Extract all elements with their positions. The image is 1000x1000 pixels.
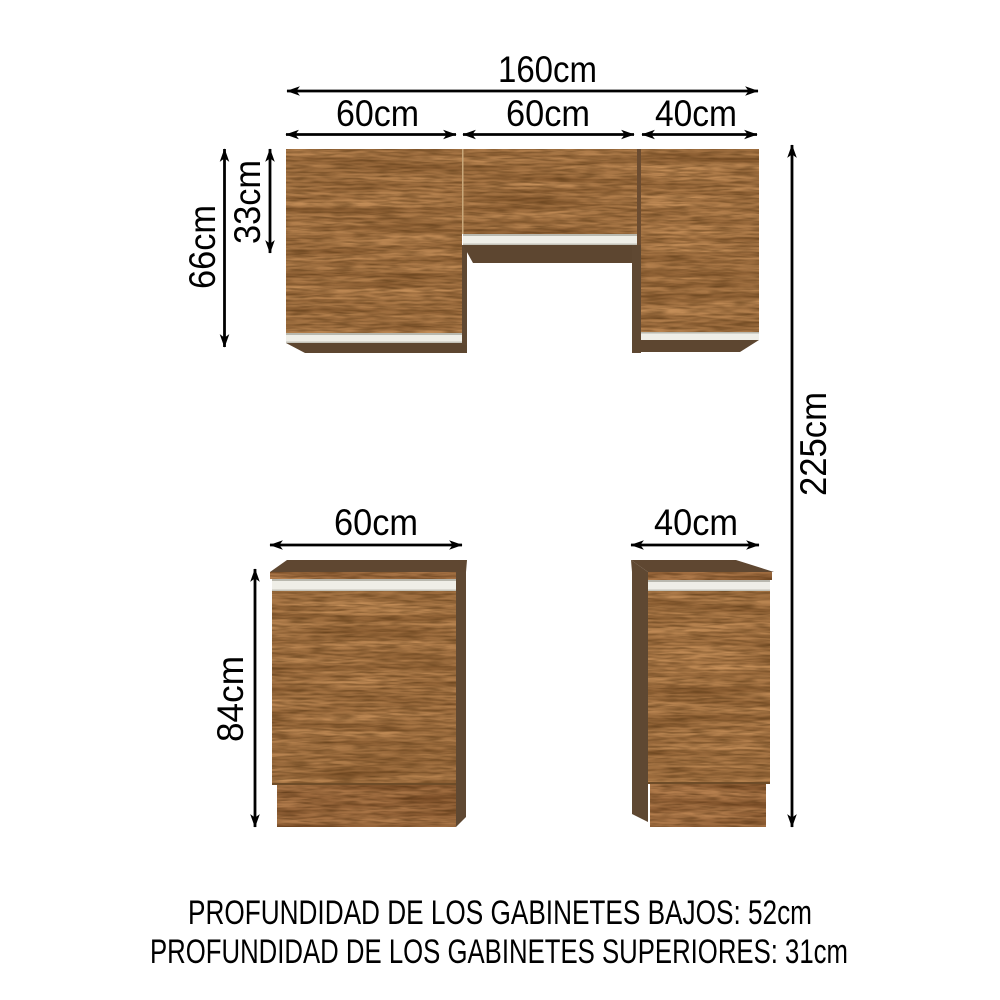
svg-text:60cm: 60cm — [334, 502, 418, 543]
svg-text:225cm: 225cm — [793, 392, 834, 496]
svg-text:160cm: 160cm — [498, 49, 597, 90]
svg-text:33cm: 33cm — [227, 160, 268, 244]
svg-text:66cm: 66cm — [182, 205, 223, 289]
svg-text:PROFUNDIDAD DE LOS GABINETES B: PROFUNDIDAD DE LOS GABINETES BAJOS: 52cm — [188, 894, 812, 932]
svg-text:60cm: 60cm — [506, 93, 590, 134]
svg-text:PROFUNDIDAD DE LOS GABINETES S: PROFUNDIDAD DE LOS GABINETES SUPERIORES:… — [150, 933, 848, 971]
svg-text:60cm: 60cm — [336, 93, 419, 134]
svg-text:40cm: 40cm — [655, 93, 737, 134]
svg-text:84cm: 84cm — [210, 656, 251, 742]
svg-text:40cm: 40cm — [654, 502, 738, 543]
